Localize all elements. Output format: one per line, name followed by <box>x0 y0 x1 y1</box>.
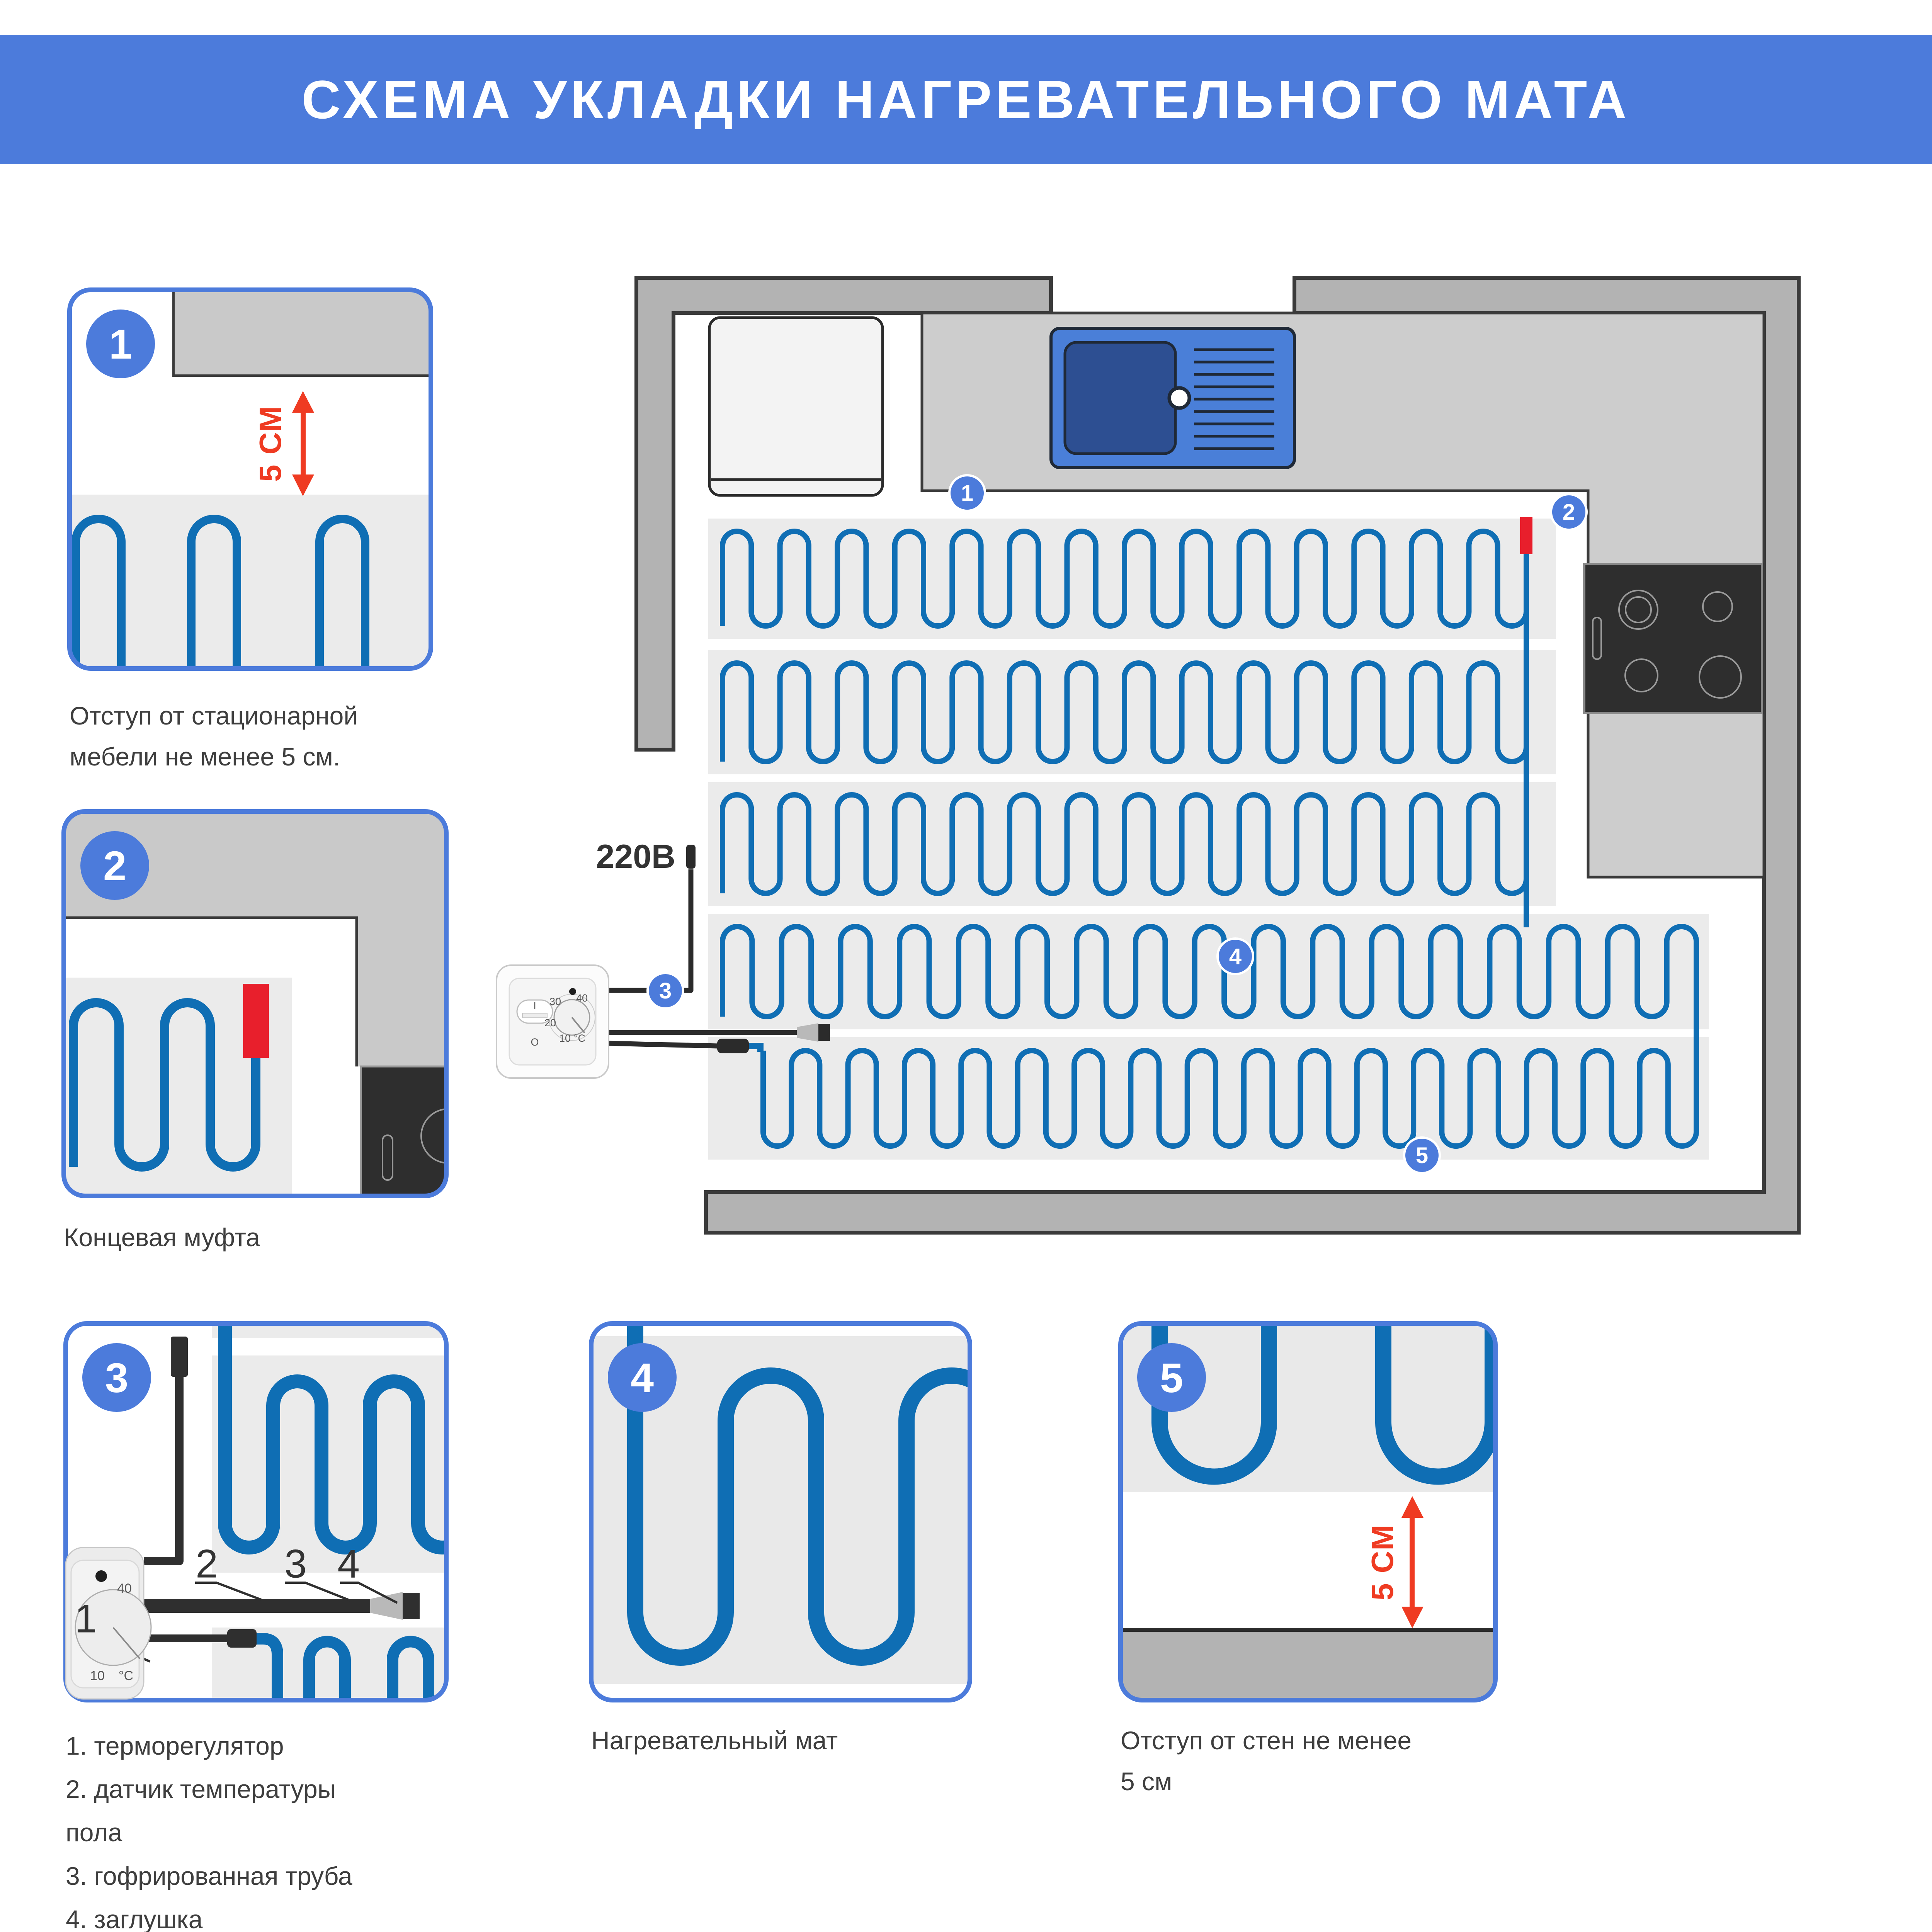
legend-line: 4. заглушка <box>66 1898 352 1932</box>
svg-text:40: 40 <box>576 992 588 1004</box>
dimension-label-5cm: 5 СМ <box>1365 1524 1400 1600</box>
part-label-plug: 4 <box>337 1541 360 1587</box>
faucet-icon <box>1169 388 1189 408</box>
legend-line: 3. гофрированная труба <box>66 1854 352 1898</box>
part-label-thermostat: 1 <box>75 1596 97 1642</box>
caption-line: мебели не менее 5 см. <box>70 736 358 777</box>
diagram-canvas: I O 40 30 20 10 °C <box>0 0 1932 1932</box>
furniture-block <box>173 287 432 376</box>
voltage-label: 220В <box>560 838 675 876</box>
wall-band <box>1121 1632 1495 1700</box>
svg-text:°C: °C <box>574 1032 585 1044</box>
sensor-plug <box>403 1593 420 1619</box>
caption-line: Нагревательный мат <box>591 1720 838 1761</box>
callout-3-legend: 1. терморегулятор 2. датчик температуры … <box>66 1724 352 1932</box>
svg-text:40: 40 <box>117 1581 132 1596</box>
power-supply-cable <box>144 1376 179 1561</box>
plan-marker-2: 2 <box>1550 493 1588 531</box>
legend-line: 1. терморегулятор <box>66 1724 352 1767</box>
legend-line: пола <box>66 1811 352 1854</box>
mat-power-cable <box>607 1043 718 1046</box>
callout-1-caption: Отступ от стационарной мебели не менее 5… <box>70 696 358 777</box>
end-coupling <box>1520 517 1532 554</box>
power-plug-icon <box>171 1337 188 1377</box>
power-supply-cable <box>607 869 691 990</box>
callout-2-caption: Концевая муфта <box>64 1217 260 1258</box>
plan-marker-5: 5 <box>1403 1136 1441 1174</box>
svg-text:O: O <box>531 1036 539 1048</box>
callout-4-caption: Нагревательный мат <box>591 1720 838 1761</box>
stove-corner <box>361 1066 475 1198</box>
part-label-tube: 3 <box>284 1541 307 1587</box>
callout-3-number: 3 <box>82 1343 151 1412</box>
callout-1-number: 1 <box>86 310 155 378</box>
power-plug-icon <box>686 845 696 869</box>
connection-coupling <box>227 1629 257 1648</box>
stove <box>1584 564 1762 713</box>
poster: СХЕМА УКЛАДКИ НАГРЕВАТЕЛЬНОГО МАТА <box>0 0 1932 1932</box>
callout-5-caption: Отступ от стен не менее 5 см <box>1121 1720 1412 1802</box>
svg-text:10: 10 <box>559 1032 571 1044</box>
fridge <box>709 318 883 495</box>
dimension-arrow <box>1401 1496 1423 1628</box>
led-dot <box>569 988 576 995</box>
svg-text:°C: °C <box>119 1668 133 1683</box>
svg-text:10: 10 <box>90 1668 105 1683</box>
svg-text:20: 20 <box>544 1017 556 1029</box>
svg-text:I: I <box>533 1000 536 1012</box>
callout-5-number: 5 <box>1137 1343 1206 1412</box>
dimension-arrow <box>292 391 314 496</box>
caption-line: Отступ от стен не менее <box>1121 1720 1412 1761</box>
legend-line: 2. датчик температуры <box>66 1767 352 1811</box>
caption-line: Концевая муфта <box>64 1217 260 1258</box>
caption-line: Отступ от стационарной <box>70 696 358 736</box>
floor-plan: I O 40 30 20 10 °C <box>497 278 1799 1233</box>
end-coupling-large <box>243 984 269 1058</box>
plan-marker-4: 4 <box>1216 937 1254 975</box>
plan-marker-1: 1 <box>948 474 986 512</box>
dimension-label-5cm: 5 СМ <box>253 405 288 482</box>
svg-text:30: 30 <box>549 996 561 1007</box>
sink <box>1051 328 1294 468</box>
callout-2-number: 2 <box>80 831 149 900</box>
connection-coupling <box>717 1039 749 1053</box>
part-label-sensor: 2 <box>196 1541 218 1587</box>
callout-4-number: 4 <box>608 1343 677 1412</box>
sensor-plug <box>818 1024 830 1041</box>
caption-line: 5 см <box>1121 1761 1412 1802</box>
plan-marker-3: 3 <box>646 972 684 1010</box>
thermostat: I O 40 30 20 10 °C <box>497 965 609 1078</box>
